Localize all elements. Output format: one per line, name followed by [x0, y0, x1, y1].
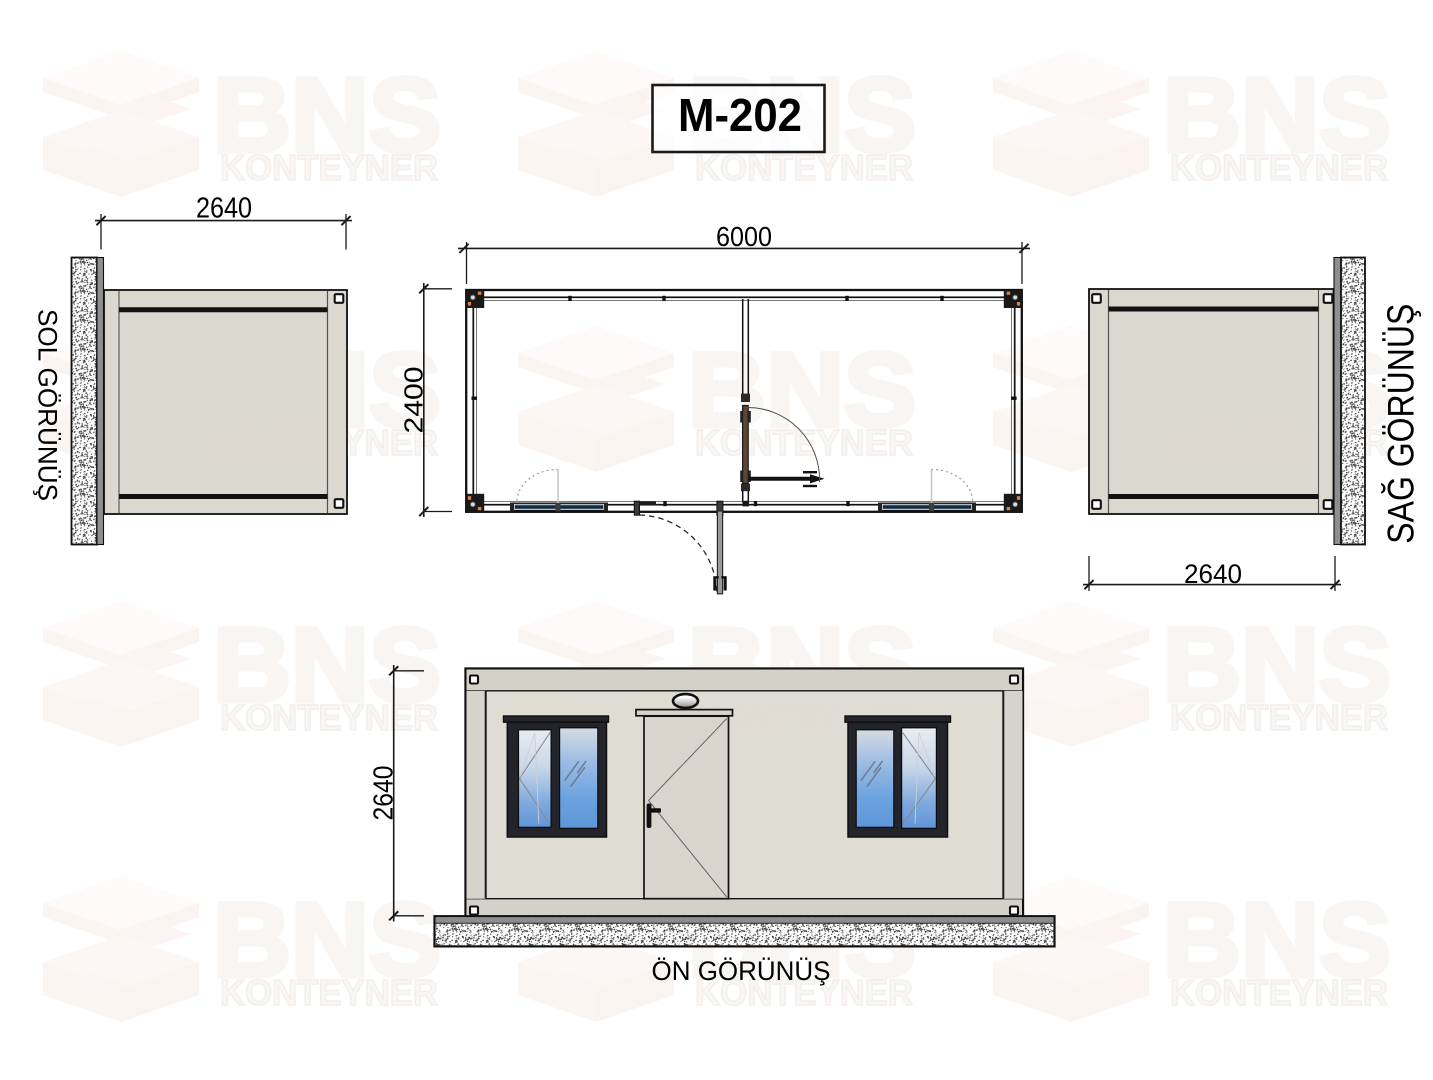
svg-text:SOL GÖRÜNÜŞ: SOL GÖRÜNÜŞ — [33, 309, 63, 501]
svg-text:6000: 6000 — [716, 221, 772, 252]
svg-text:ÖN GÖRÜNÜŞ: ÖN GÖRÜNÜŞ — [652, 956, 831, 986]
svg-text:2640: 2640 — [196, 193, 252, 225]
svg-text:SAĞ GÖRÜNÜŞ: SAĞ GÖRÜNÜŞ — [1381, 304, 1422, 544]
svg-text:M-202: M-202 — [678, 89, 802, 141]
